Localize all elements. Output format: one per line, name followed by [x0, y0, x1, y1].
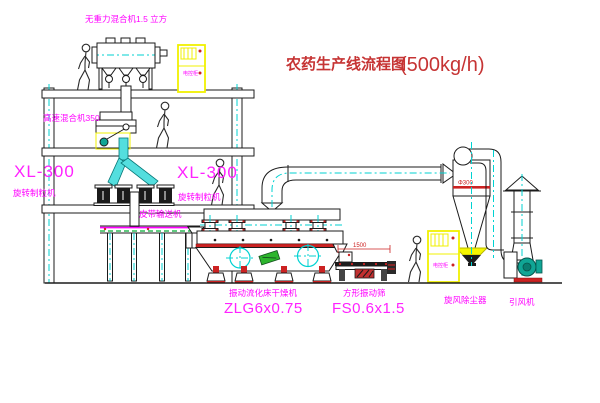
granulator-downpipe: [130, 192, 139, 227]
fluid-bed-dryer: [186, 209, 344, 283]
mixer-discharge-chute: [119, 138, 128, 160]
label-granulator-right-model: XL-300: [177, 163, 238, 182]
vortex-finder: [454, 147, 472, 165]
granulator-left: [94, 185, 132, 206]
label-dryer-model: ZLG6x0.75: [224, 300, 303, 317]
motor-pulley: [100, 138, 108, 146]
belt-conveyor: [100, 226, 200, 281]
sieve-deck: [335, 262, 390, 266]
sieve-leg: [381, 269, 387, 281]
square-vibrating-sieve: 1500: [333, 243, 396, 281]
control-cabinet-2: 电控柜: [428, 231, 459, 282]
label-gravity-mixer: 无重力混合机1.5 立方: [85, 14, 167, 24]
label-fan: 引风机: [509, 297, 535, 307]
indicator-dot: [452, 237, 455, 240]
person-ground: [409, 236, 421, 282]
label-granulator-right-name: 旋转制粒机: [178, 192, 221, 202]
indicator-dot: [199, 50, 202, 53]
sieve-dimension: 1500: [353, 243, 367, 249]
label-sieve-model: FS0.6x1.5: [332, 300, 405, 317]
label-sieve-name: 方形振动筛: [343, 288, 386, 298]
indicator-dot: [452, 264, 455, 267]
dryer-body: [197, 231, 343, 244]
diagram-title: 农药生产线流程图: [285, 55, 406, 73]
label-dryer-name: 振动流化床干燥机: [229, 288, 298, 298]
sieve-inlet: [339, 252, 352, 262]
diagram-title-capacity: (500kg/h): [400, 54, 485, 76]
gravity-free-mixer: [92, 38, 167, 112]
mixer-discharge-valves: [102, 68, 150, 88]
fan-base: [514, 278, 542, 282]
cabinet-label: 电控柜: [183, 70, 198, 77]
person-second-floor: [157, 102, 169, 148]
cabinet-label: 电控柜: [433, 262, 448, 269]
granulator-right: [136, 185, 174, 206]
person-roof: [78, 44, 90, 90]
label-granulator-left-model: XL-300: [14, 162, 75, 181]
floor-slab-top: [42, 90, 254, 98]
y-splitter-chute: [108, 158, 158, 187]
label-granulator-left-name: 旋转制粒机: [13, 188, 56, 198]
indicator-dot: [199, 72, 202, 75]
fan-inlet-box: [504, 252, 517, 278]
flow-diagram-canvas: 电控柜: [0, 0, 600, 403]
floor-slab-middle: [42, 148, 254, 156]
control-cabinet-1: 电控柜: [178, 45, 205, 92]
fan-motor: [536, 260, 542, 273]
exhaust-duct: [262, 164, 456, 209]
label-cyclone: 旋风除尘器: [444, 295, 487, 305]
sieve-motor: [387, 261, 396, 274]
mixer-downpipe: [121, 86, 131, 112]
dryer-hood: [204, 209, 340, 220]
label-high-speed-mixer: 高速混合机350: [43, 113, 100, 123]
cyclone-separator: Φ300: [453, 142, 520, 266]
cad-flow-diagram: 电控柜: [0, 0, 600, 403]
label-belt-conveyor: 皮带输送机: [139, 209, 182, 219]
dryer-vibrating-frame: [196, 244, 344, 248]
sieve-leg: [339, 269, 345, 281]
conveyor-legs: [108, 233, 191, 281]
